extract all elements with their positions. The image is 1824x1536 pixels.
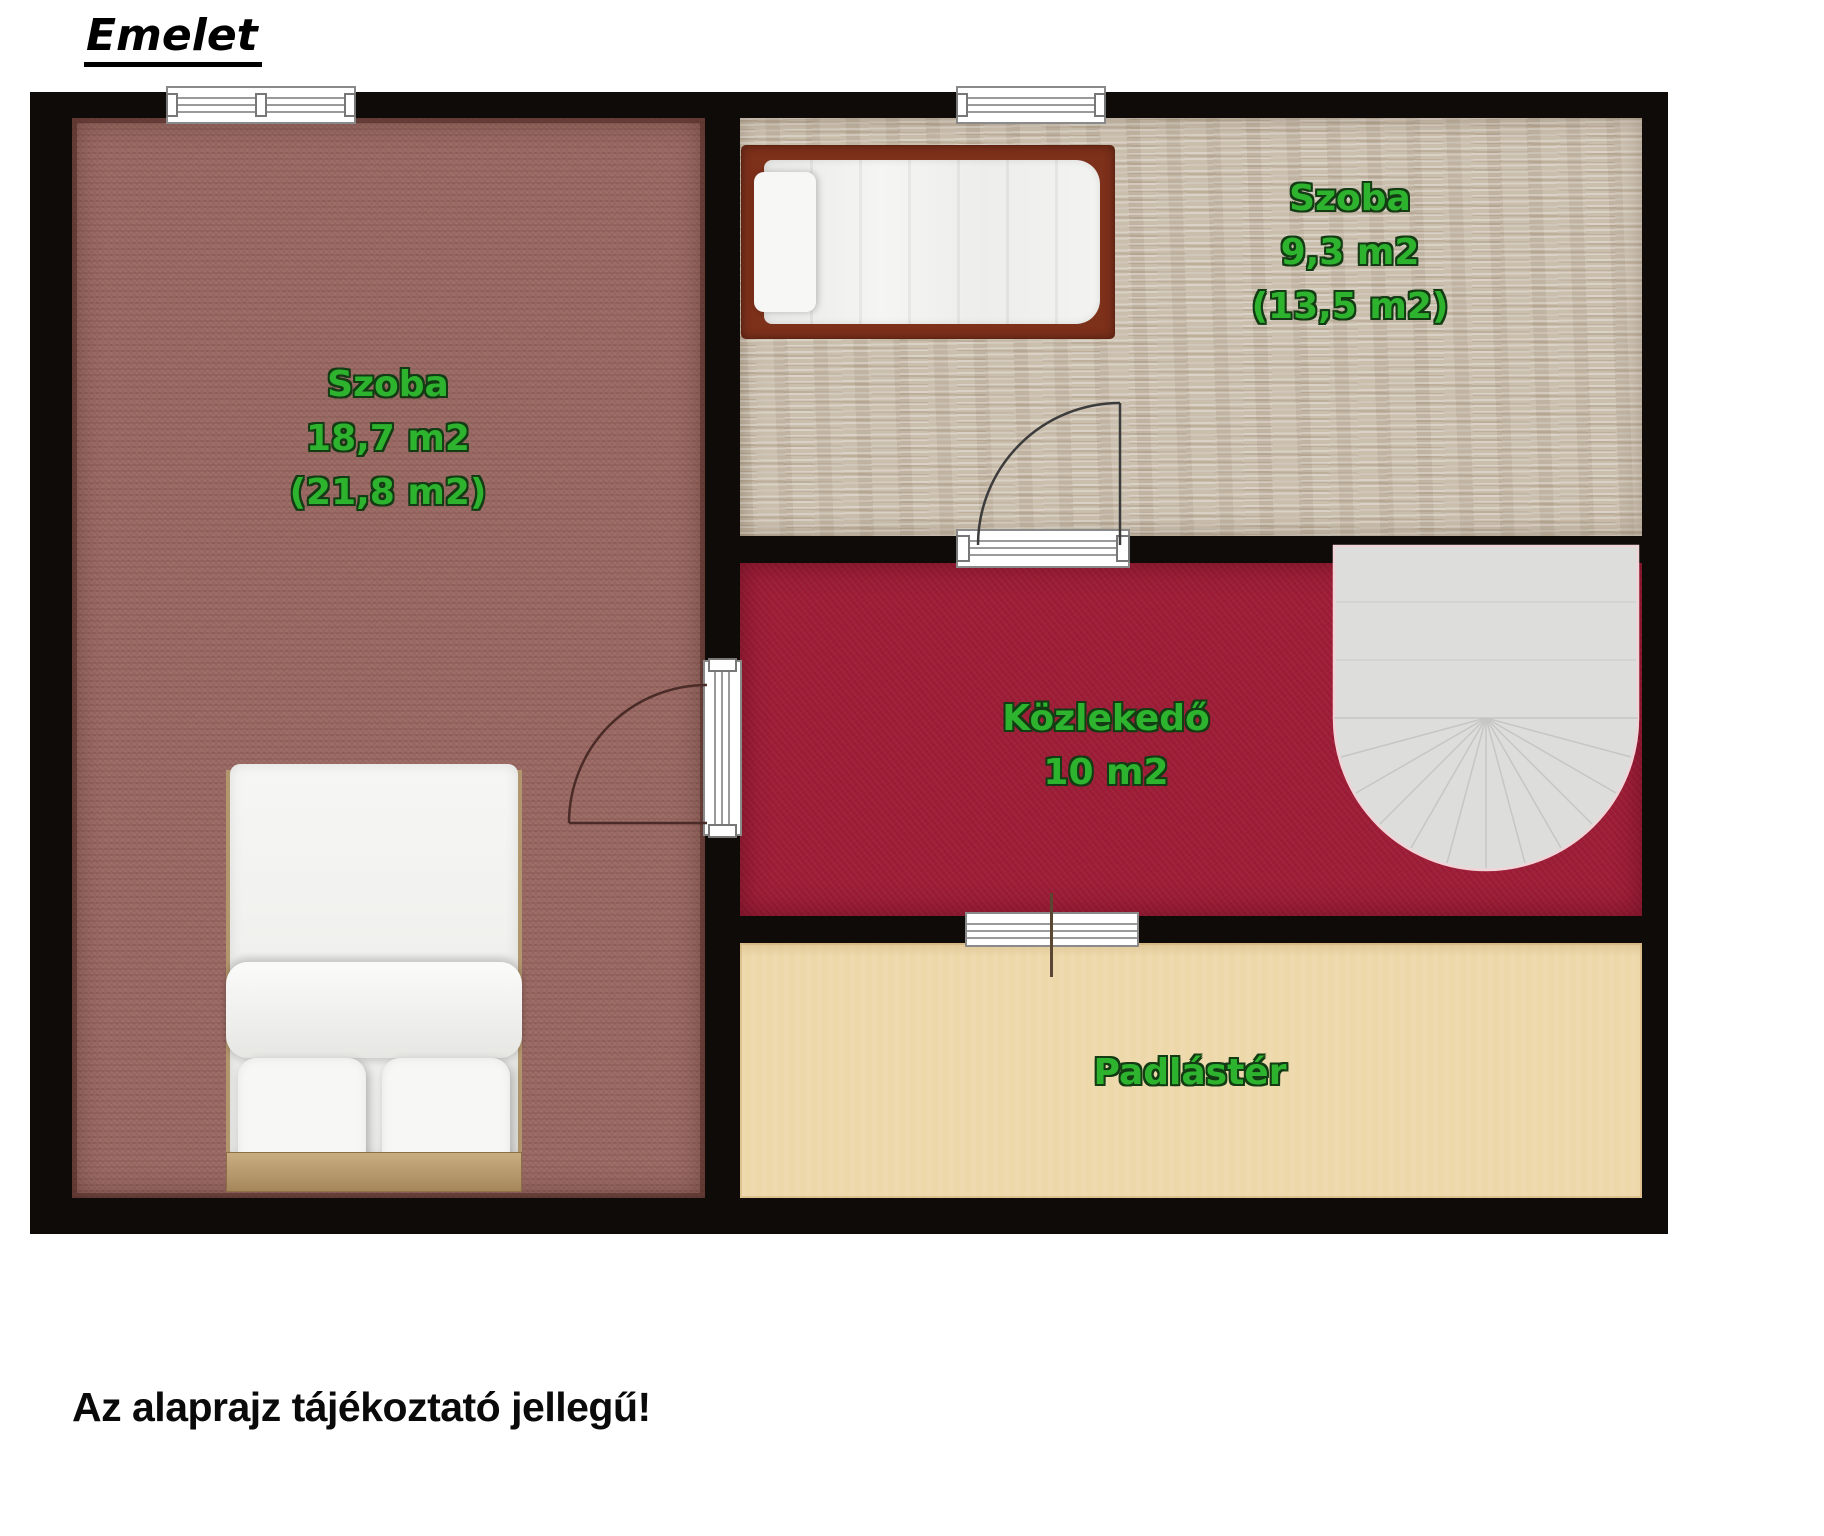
passage-center-mark — [1050, 893, 1053, 977]
label-kozlekedo: Közlekedő 10 m2 — [906, 692, 1306, 800]
disclaimer-text: Az alaprajz tájékoztató jellegű! — [72, 1384, 651, 1431]
bed-headboard — [226, 1152, 522, 1192]
window-icon-small-room — [956, 86, 1106, 124]
room-net-area: 9,3 m2 — [1150, 226, 1550, 280]
label-padlaster: Padlástér — [990, 1046, 1390, 1100]
wall-right — [1642, 92, 1668, 1234]
room-gross-area: (13,5 m2) — [1150, 280, 1550, 334]
bed-blanket-fold — [226, 962, 522, 1058]
room-net-area: 18,7 m2 — [188, 412, 588, 466]
room-net-area: 10 m2 — [906, 746, 1306, 800]
door-swing-icon-small-room — [960, 395, 1135, 550]
window-post — [344, 93, 356, 117]
room-name: Padlástér — [990, 1046, 1390, 1100]
window-post — [1094, 93, 1106, 117]
double-bed-icon — [226, 764, 522, 1192]
wall-bottom — [30, 1198, 1668, 1234]
room-name: Szoba — [1150, 172, 1550, 226]
room-name: Szoba — [188, 358, 588, 412]
label-szoba-small: Szoba 9,3 m2 (13,5 m2) — [1150, 172, 1550, 334]
wall-left — [30, 92, 72, 1234]
door-swing-icon-left-room — [556, 655, 756, 840]
window-post — [255, 93, 267, 117]
page-title: Emelet — [84, 10, 262, 67]
window-post — [956, 93, 968, 117]
wall-interior-lower — [740, 916, 1642, 943]
label-szoba-large: Szoba 18,7 m2 (21,8 m2) — [188, 358, 588, 520]
window-icon-left-room — [166, 86, 356, 124]
room-name: Közlekedő — [906, 692, 1306, 746]
bed-pillow — [754, 172, 816, 312]
window-post — [166, 93, 178, 117]
staircase-icon — [1328, 540, 1644, 885]
room-gross-area: (21,8 m2) — [188, 466, 588, 520]
floor-plan-page: Emelet — [0, 0, 1824, 1536]
single-bed-icon — [742, 146, 1114, 338]
